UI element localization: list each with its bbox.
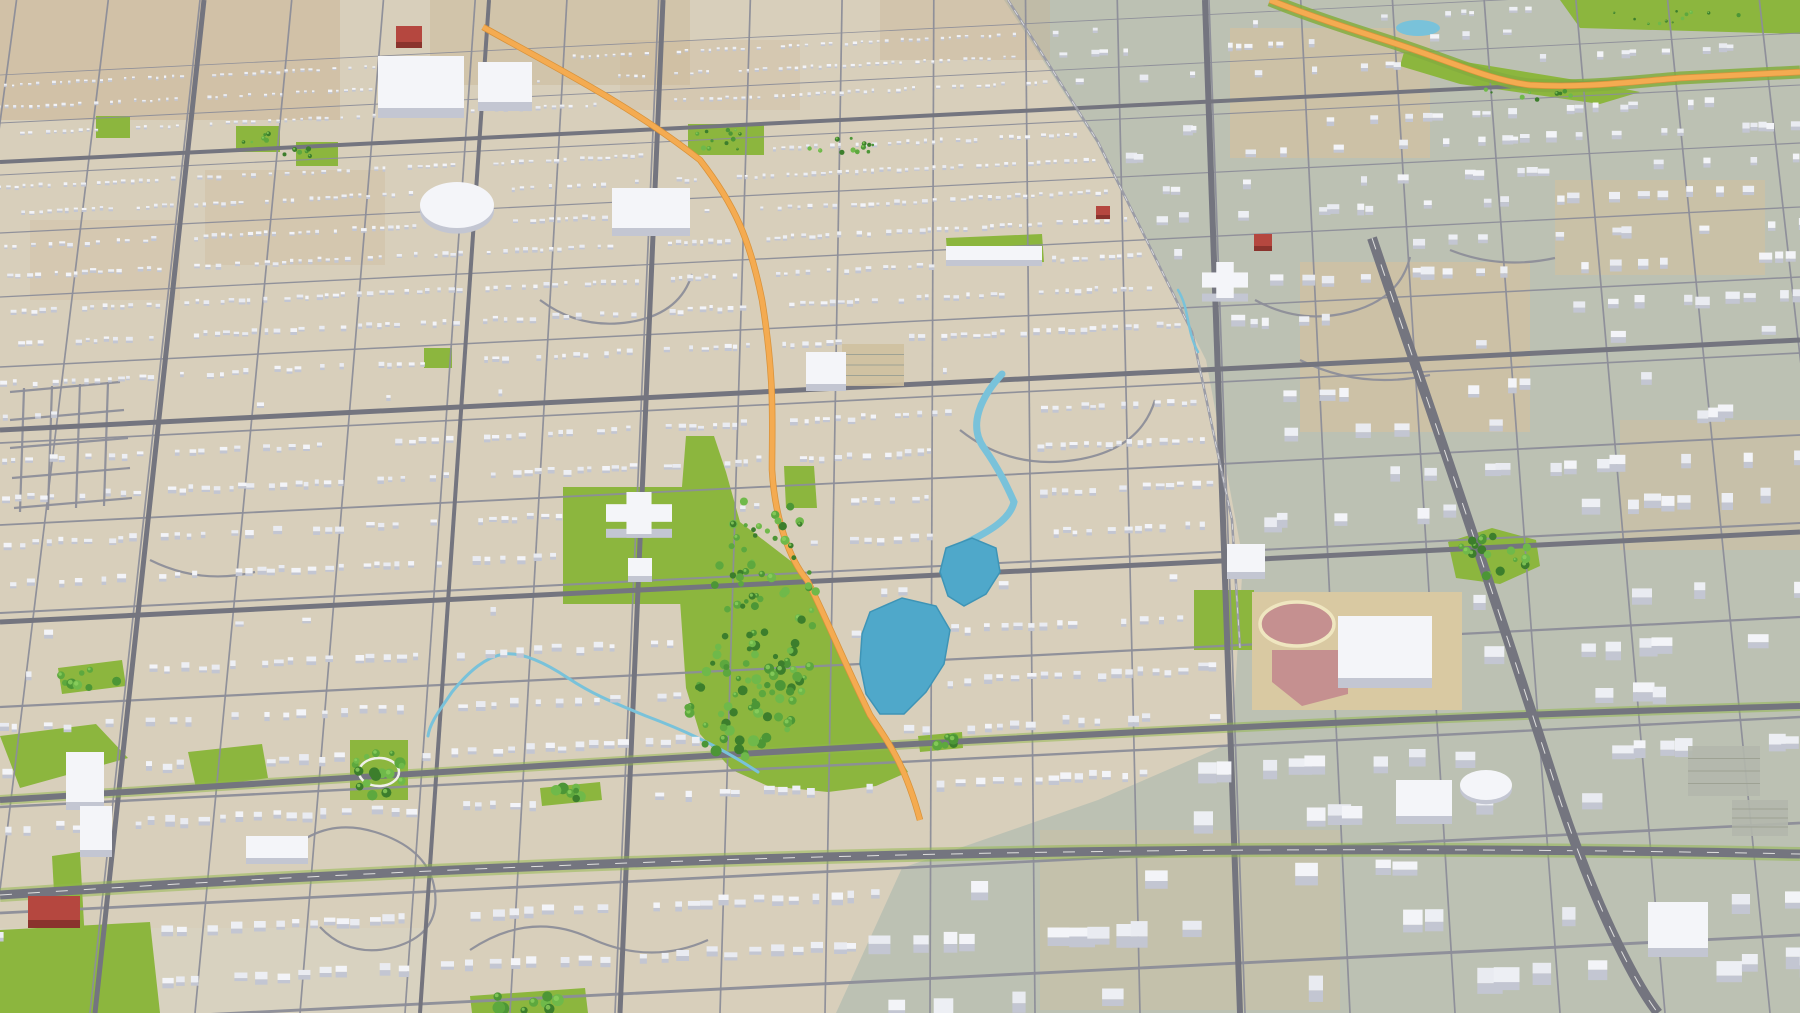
building-face: [826, 343, 833, 346]
building-block: [534, 645, 542, 650]
building-block: [782, 342, 786, 346]
building-face: [471, 111, 475, 113]
building-face: [771, 951, 784, 956]
building-face: [1638, 196, 1650, 199]
building-face: [1125, 530, 1133, 533]
building-block: [725, 239, 731, 242]
building-face: [108, 80, 112, 82]
building-face: [600, 963, 610, 967]
building-face: [316, 119, 321, 121]
building-face: [234, 449, 240, 452]
building-face: [920, 232, 926, 235]
building-block: [941, 37, 944, 39]
building-block: [995, 164, 1000, 166]
building-face: [623, 157, 628, 159]
building-face: [164, 672, 170, 674]
building-block: [700, 306, 707, 309]
building-block: [908, 266, 911, 268]
building-face: [92, 209, 95, 211]
building-face: [1084, 161, 1089, 163]
building-face: [299, 330, 305, 332]
tree: [1482, 571, 1491, 580]
building-block: [824, 203, 829, 205]
building-block: [176, 125, 179, 127]
building-block: [855, 267, 861, 270]
building-block: [1155, 400, 1161, 403]
building-block: [325, 527, 332, 532]
building-block: [378, 523, 384, 527]
city-3d-map-viewport: [0, 0, 1800, 1013]
building-face: [283, 201, 287, 203]
building-face: [1399, 145, 1408, 149]
building-block: [894, 537, 902, 541]
building-block: [552, 313, 559, 316]
building-block: [1322, 276, 1334, 283]
building-face: [1732, 904, 1750, 914]
building-face: [373, 116, 376, 118]
building-face: [1361, 183, 1367, 186]
building-block: [944, 295, 950, 298]
building-face: [904, 731, 914, 734]
building-block: [1177, 482, 1184, 485]
building-block: [674, 72, 678, 74]
building-block: [1356, 424, 1371, 433]
building-face: [1611, 337, 1626, 343]
building-face: [575, 704, 582, 707]
building-block: [109, 453, 115, 457]
tree: [740, 604, 745, 609]
building-face: [409, 194, 413, 196]
building-block: [1217, 761, 1232, 774]
building-block: [984, 674, 992, 679]
building-block: [1424, 200, 1432, 205]
building-block: [476, 701, 486, 707]
building-block: [740, 306, 747, 309]
building-face: [1496, 470, 1511, 476]
building-block: [423, 753, 431, 758]
building-face: [412, 227, 416, 229]
building-face: [151, 239, 156, 242]
building-block: [1635, 295, 1645, 302]
building-face: [229, 236, 232, 239]
building-face: [955, 229, 959, 232]
building-block: [815, 417, 820, 421]
building-block: [0, 186, 1, 188]
tree: [741, 547, 747, 553]
building-face: [285, 174, 290, 176]
building-face: [177, 765, 184, 769]
building-face: [552, 286, 558, 288]
tree-highlight: [760, 572, 763, 575]
building-face: [611, 283, 616, 286]
building-block: [471, 912, 481, 919]
building-block: [695, 277, 701, 280]
building-block: [1104, 220, 1109, 222]
building-block: [1472, 111, 1480, 115]
building-face: [1125, 675, 1133, 679]
building-face: [489, 520, 497, 522]
building-block: [85, 454, 91, 457]
building-block: [635, 180, 639, 182]
ground-patch: [1300, 262, 1530, 432]
building-block: [576, 742, 585, 748]
tree-highlight: [772, 512, 776, 516]
building-block: [790, 343, 794, 347]
building-block: [358, 193, 361, 195]
building-block: [924, 495, 928, 499]
building-block: [150, 665, 158, 669]
building-face: [163, 770, 173, 773]
building-block: [303, 813, 313, 819]
building-block: [1070, 191, 1073, 193]
building-face: [499, 394, 503, 397]
building-block: [655, 793, 664, 797]
building-block: [635, 279, 639, 282]
building-face: [264, 717, 269, 721]
building-face: [372, 809, 383, 814]
building-face: [576, 653, 584, 656]
building-face: [731, 794, 740, 797]
building-block: [1102, 325, 1106, 329]
building-face: [1089, 493, 1096, 496]
building-block: [1576, 132, 1583, 137]
building-face: [0, 188, 1, 190]
building-face: [4, 86, 7, 87]
building-face: [922, 203, 928, 204]
building-face: [558, 434, 563, 437]
building-block: [64, 182, 68, 185]
building-block: [121, 491, 126, 495]
building-block: [1028, 162, 1034, 164]
building-block: [20, 543, 25, 547]
building-block: [903, 413, 909, 416]
building-block: [229, 298, 235, 301]
building-face: [325, 659, 333, 662]
building-block: [963, 227, 967, 230]
building-face: [269, 174, 272, 176]
building-block: [626, 75, 629, 77]
tree: [738, 581, 744, 587]
building-block: [75, 578, 82, 582]
building-face: [1138, 671, 1144, 676]
building-face: [883, 64, 887, 65]
building-face: [676, 740, 686, 744]
building-block: [380, 227, 384, 229]
building-face: [1052, 492, 1057, 496]
building-block: [1131, 921, 1148, 936]
tree: [702, 741, 709, 748]
building-block: [688, 901, 700, 906]
building-block: [242, 173, 246, 175]
building-face: [593, 283, 596, 285]
tree: [775, 517, 782, 524]
building-face: [176, 982, 185, 986]
building-block: [1503, 30, 1512, 33]
building-face: [10, 586, 16, 588]
building-block: [368, 256, 373, 258]
building-face: [1116, 936, 1132, 948]
building-face: [796, 274, 800, 276]
building-block: [557, 217, 560, 220]
building-block: [157, 268, 161, 270]
building-block: [895, 413, 901, 416]
building-block: [881, 589, 887, 595]
building-face: [254, 928, 266, 932]
building-block: [242, 332, 248, 335]
building-face: [604, 745, 615, 749]
building-face: [676, 956, 689, 961]
building-face: [13, 108, 16, 109]
building-face: [617, 351, 621, 354]
building-block: [377, 323, 381, 327]
building-face: [927, 537, 933, 541]
building-block: [984, 623, 990, 627]
building-face: [1049, 781, 1060, 785]
building-face: [204, 237, 209, 239]
building-face: [277, 451, 282, 453]
building-block: [315, 479, 319, 483]
building-block: [1405, 114, 1413, 119]
building-face: [584, 358, 589, 360]
building-face: [313, 531, 320, 535]
building-block: [848, 418, 856, 422]
building-face: [223, 333, 230, 335]
building-block: [7, 274, 13, 277]
building-face: [835, 66, 838, 68]
building-block: [216, 264, 222, 267]
building-face: [944, 298, 950, 301]
building-face: [449, 290, 455, 292]
building-face: [1255, 75, 1263, 77]
building-block: [324, 480, 331, 484]
building-block: [560, 105, 565, 107]
building-face: [1014, 782, 1022, 785]
building-face: [146, 766, 152, 771]
building-block: [812, 171, 817, 174]
building-block: [821, 42, 825, 44]
building-face: [536, 704, 541, 706]
building-face: [6, 187, 11, 189]
building-block: [554, 159, 559, 161]
building-block: [787, 67, 792, 69]
building-face: [1443, 511, 1456, 518]
building-block: [573, 54, 576, 56]
building-block: [925, 38, 929, 40]
building-face: [1295, 876, 1318, 885]
building-face: [38, 344, 44, 346]
landmark-face: [246, 858, 308, 864]
building-face: [1050, 196, 1054, 198]
building-face: [1198, 774, 1217, 784]
building-face: [585, 285, 591, 287]
building-face: [106, 493, 111, 496]
building-face: [536, 109, 541, 111]
building-face: [1327, 209, 1339, 214]
building-block: [372, 226, 376, 229]
building-face: [635, 283, 639, 286]
building-block: [923, 726, 930, 732]
building-face: [867, 236, 871, 238]
building-face: [985, 167, 988, 169]
building-block: [1593, 103, 1599, 108]
building-block: [1043, 80, 1048, 82]
building-block: [1727, 45, 1734, 49]
building-face: [28, 133, 32, 134]
building-face: [176, 126, 179, 127]
building-block: [149, 336, 153, 339]
building-block: [600, 957, 610, 963]
building-face: [311, 174, 314, 176]
building-face: [215, 98, 217, 100]
building-face: [1449, 240, 1458, 245]
building-block: [274, 810, 282, 814]
building-face: [717, 100, 722, 101]
building-block: [1520, 134, 1530, 138]
building-block: [1302, 275, 1315, 281]
building-face: [709, 51, 711, 53]
building-block: [1002, 623, 1009, 628]
building-face: [821, 174, 826, 176]
building-block: [602, 466, 610, 471]
building-face: [851, 503, 859, 506]
building-face: [959, 944, 975, 951]
building-face: [1478, 142, 1485, 146]
building-face: [1082, 406, 1090, 410]
building-block: [39, 308, 46, 311]
tree-highlight: [721, 736, 725, 740]
building-face: [162, 205, 167, 207]
building-block: [180, 372, 184, 374]
building-block: [180, 818, 188, 824]
tree-highlight: [1522, 555, 1526, 559]
building-block: [552, 644, 562, 648]
building-face: [533, 288, 537, 289]
tree: [850, 137, 853, 140]
building-face: [724, 957, 737, 960]
building-block: [1610, 455, 1626, 464]
building-block: [33, 382, 38, 386]
building-block: [1719, 43, 1727, 48]
building-face: [513, 475, 521, 478]
building-block: [712, 275, 715, 278]
building-block: [189, 484, 194, 488]
building-block: [108, 377, 112, 380]
building-face: [787, 68, 792, 70]
building-block: [430, 475, 436, 478]
building-face: [1055, 677, 1062, 679]
building-block: [240, 233, 243, 235]
building-face: [735, 463, 741, 467]
building-face: [213, 204, 218, 206]
building-face: [1251, 324, 1258, 328]
building-block: [11, 458, 15, 461]
building-face: [776, 275, 780, 277]
building-block: [299, 754, 309, 760]
building-face: [175, 576, 180, 579]
building-face: [526, 964, 536, 968]
tree: [729, 543, 735, 549]
building-block: [1421, 267, 1435, 275]
building-face: [284, 71, 287, 72]
building-face: [170, 722, 178, 725]
building-block: [272, 93, 275, 95]
building-face: [941, 39, 944, 40]
building-block: [645, 52, 649, 54]
building-block: [213, 202, 218, 204]
building-block: [475, 802, 482, 806]
building-face: [790, 347, 794, 349]
building-block: [793, 947, 804, 952]
building-block: [280, 483, 287, 487]
building-face: [1588, 970, 1607, 981]
building-block: [106, 489, 111, 494]
building-face: [530, 188, 534, 189]
building-face: [897, 143, 902, 145]
building-block: [957, 35, 961, 37]
building-face: [1374, 767, 1388, 774]
building-block: [1409, 749, 1426, 757]
building-block: [264, 230, 268, 233]
building-block: [1398, 174, 1409, 180]
building-block: [473, 556, 481, 561]
building-face: [67, 246, 73, 248]
building-block: [578, 467, 584, 471]
building-block: [198, 449, 204, 453]
building-block: [1099, 403, 1105, 407]
building-block: [408, 165, 412, 168]
building-face: [50, 497, 54, 499]
building-face: [232, 717, 239, 720]
building-face: [802, 346, 808, 349]
building-face: [1277, 520, 1288, 528]
building-block: [789, 44, 792, 46]
building-block: [95, 129, 98, 131]
building-block: [263, 297, 267, 301]
building-face: [1461, 13, 1466, 15]
building-block: [733, 47, 737, 50]
building-block: [689, 345, 693, 349]
building-face: [358, 196, 361, 198]
building-face: [713, 426, 717, 429]
building-block: [774, 94, 778, 97]
building-face: [1762, 332, 1776, 335]
building-face: [180, 493, 186, 496]
building-block: [1283, 390, 1296, 396]
building-block: [311, 172, 314, 174]
building-face: [492, 359, 499, 362]
building-face: [1123, 52, 1128, 55]
building-face: [35, 276, 41, 278]
building-block: [1443, 268, 1453, 274]
building-face: [1160, 529, 1166, 533]
building-block: [1026, 722, 1036, 728]
building-face: [695, 279, 701, 281]
building-block: [393, 522, 399, 525]
building-face: [1538, 173, 1550, 176]
building-face: [838, 146, 841, 148]
building-block: [602, 216, 608, 219]
building-block: [749, 947, 761, 952]
building-face: [298, 975, 310, 980]
building-block: [600, 311, 604, 314]
building-block: [383, 166, 386, 169]
building-face: [909, 40, 913, 42]
building-face: [897, 172, 902, 174]
building-block: [719, 895, 729, 900]
building-block: [263, 444, 270, 447]
building-block: [594, 103, 597, 105]
building-block: [510, 908, 519, 915]
